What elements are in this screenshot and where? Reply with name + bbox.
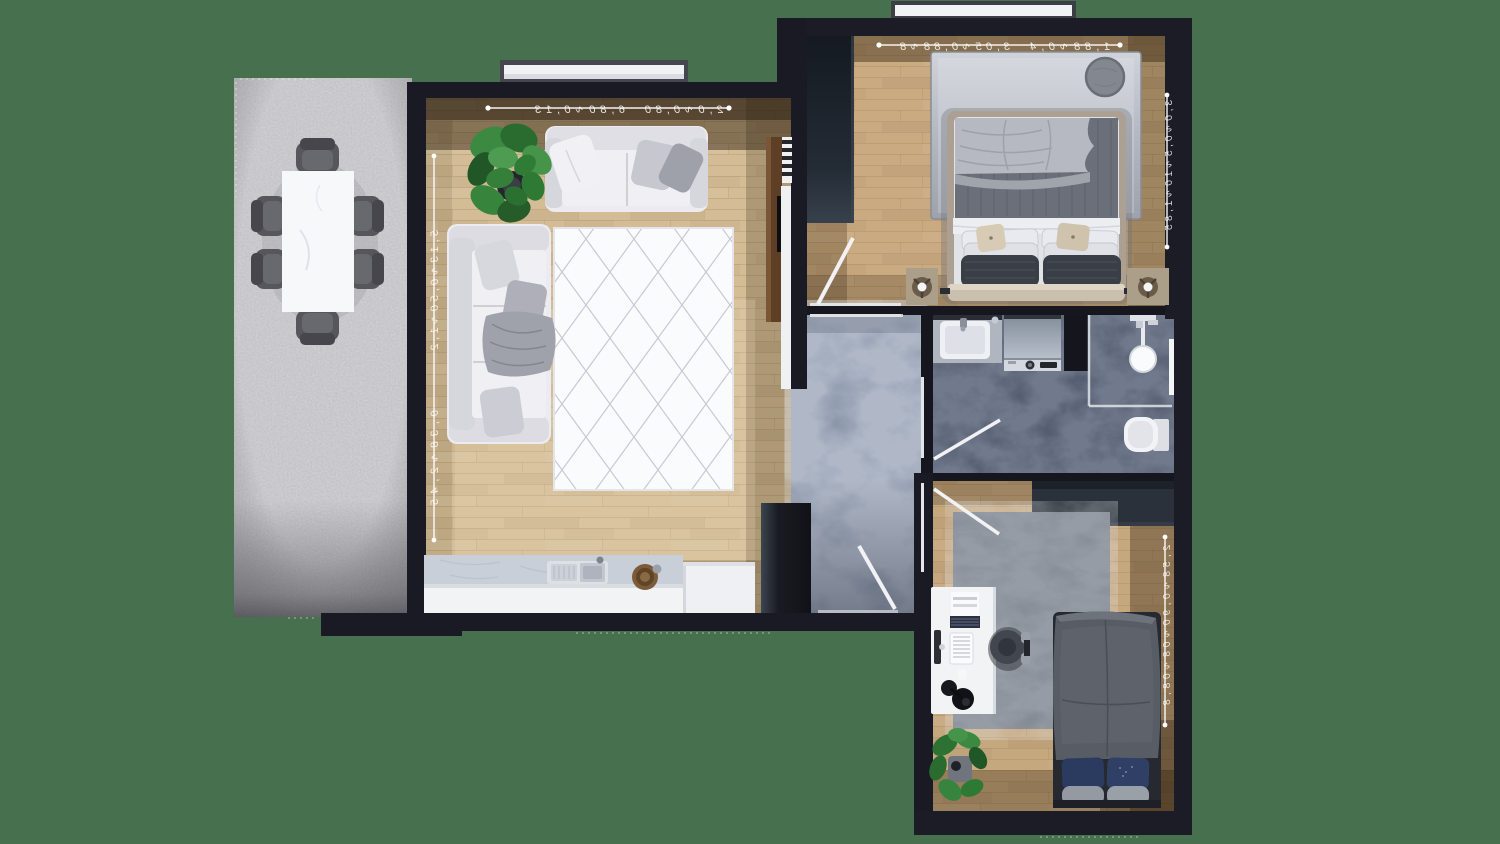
svg-text:3,0∿0,5∿10∿1,85: 3,0∿0,5∿10∿1,85: [1164, 100, 1175, 230]
svg-text:1,88∿0,4: 1,88∿0,4: [1030, 41, 1110, 53]
svg-text:6,80∿0,13: 6,80∿0,13: [534, 104, 625, 116]
svg-text:5,13∿0,50∿1,2: 5,13∿0,50∿1,2: [429, 230, 441, 350]
svg-text:0,38∿2,45: 0,38∿2,45: [429, 410, 441, 506]
